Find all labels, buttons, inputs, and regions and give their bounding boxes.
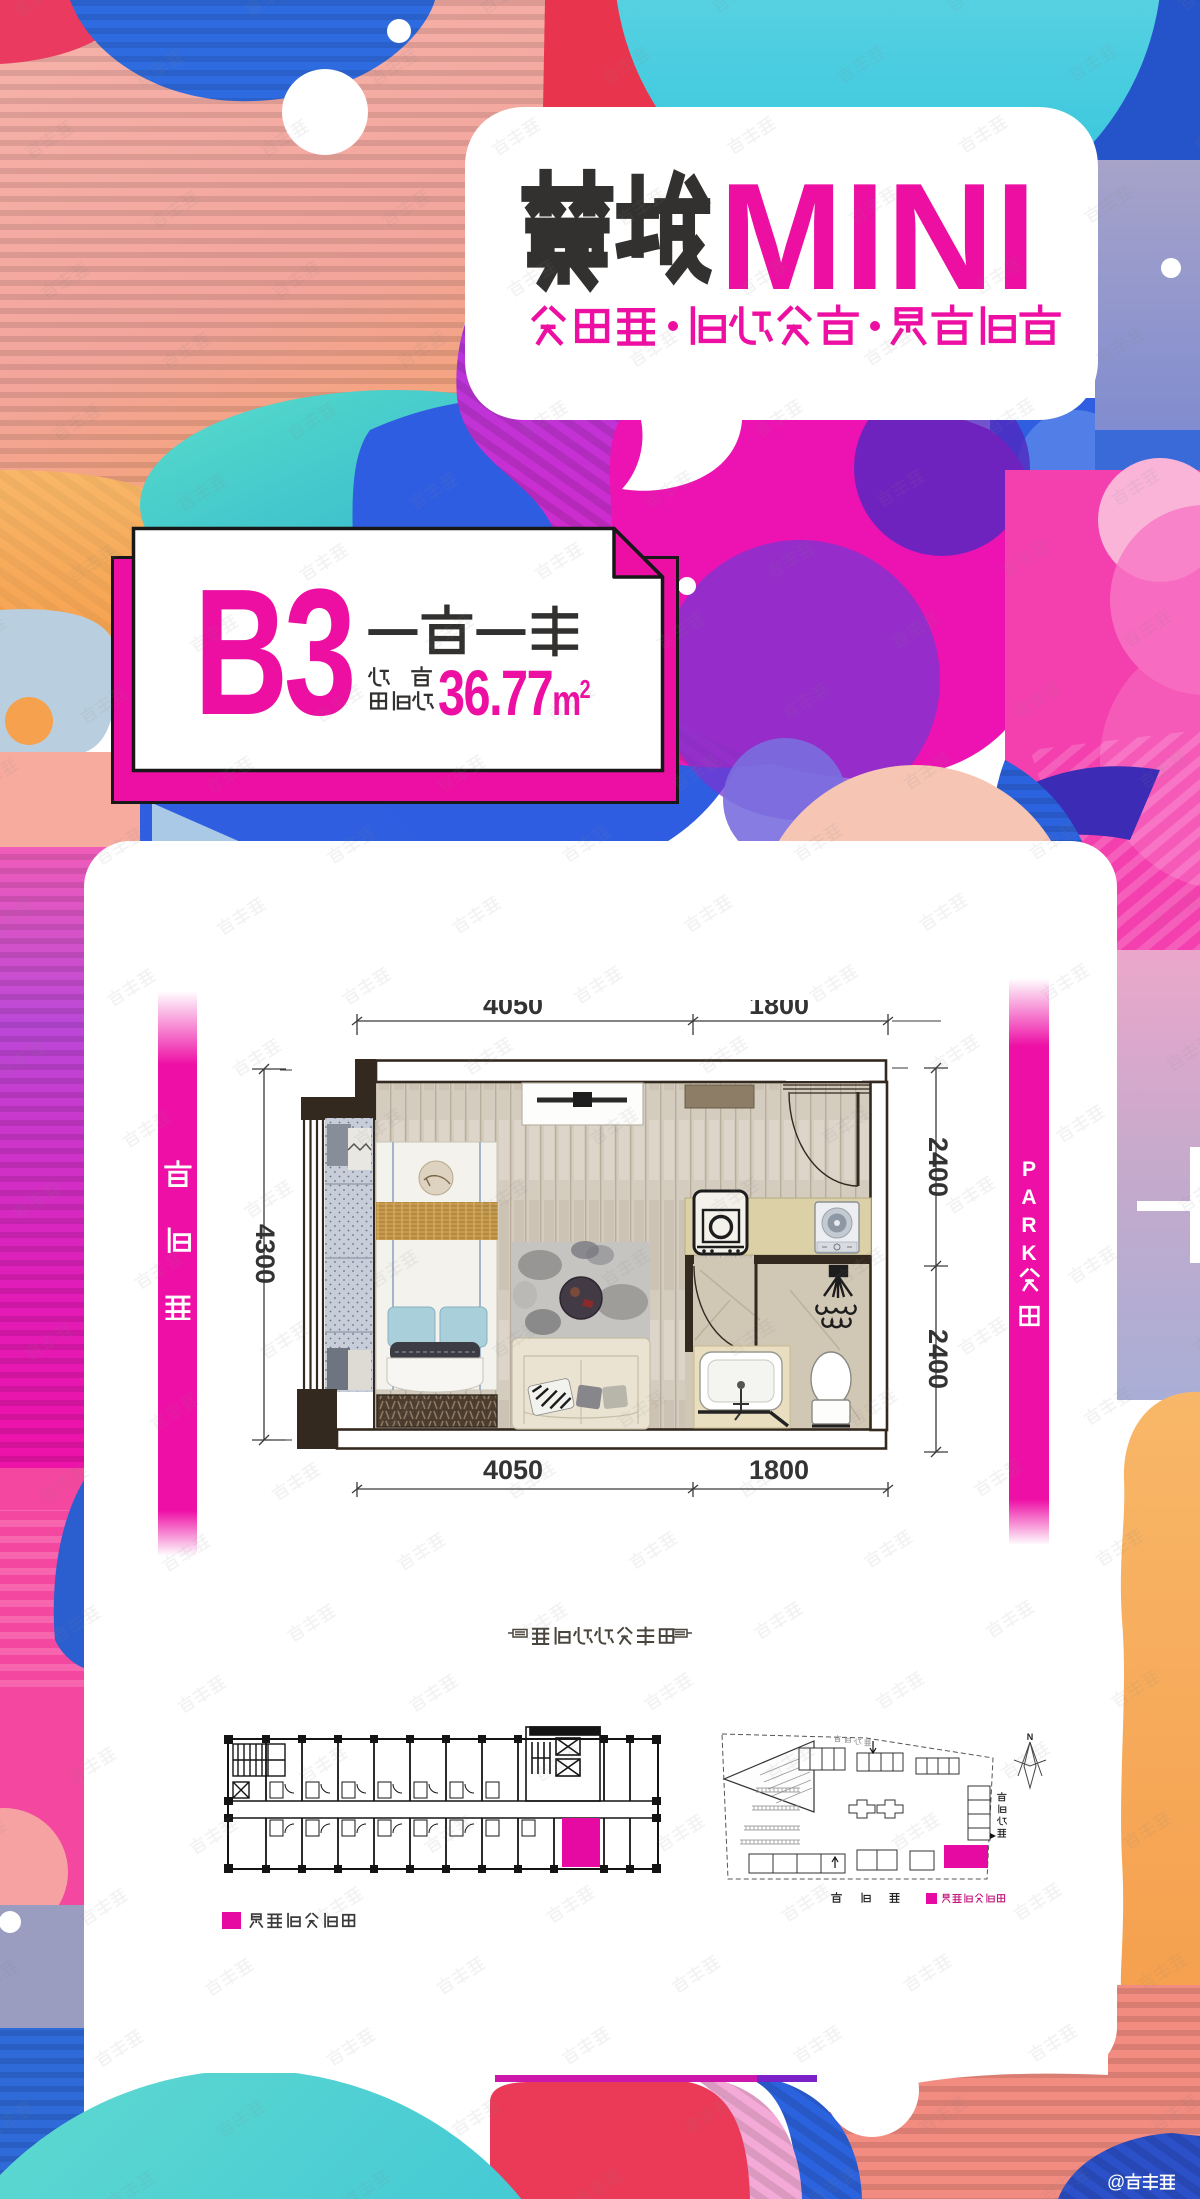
svg-text:@: @ xyxy=(1107,2172,1125,2192)
